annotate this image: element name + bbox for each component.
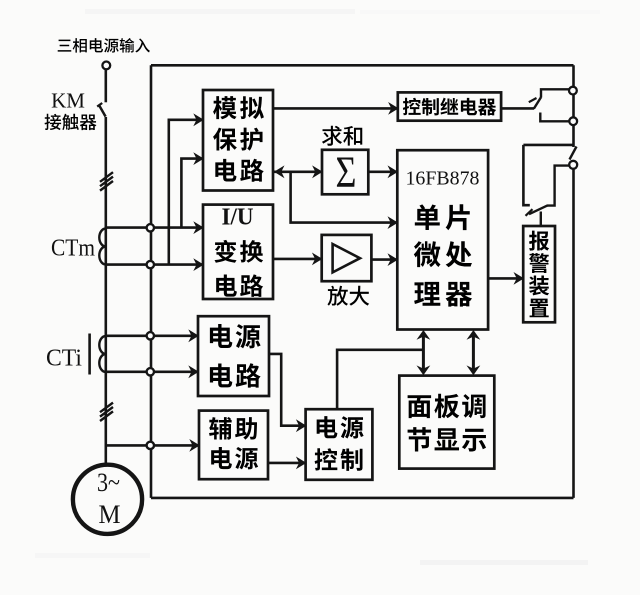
- svg-text:Σ: Σ: [335, 147, 356, 196]
- svg-text:CTi: CTi: [46, 346, 82, 372]
- svg-text:3~: 3~: [97, 468, 120, 497]
- svg-text:CTm: CTm: [51, 236, 95, 262]
- svg-text:16FB878: 16FB878: [406, 168, 480, 190]
- svg-text:M: M: [99, 500, 121, 529]
- svg-text:I/U: I/U: [222, 205, 254, 231]
- svg-text:KM: KM: [51, 89, 85, 113]
